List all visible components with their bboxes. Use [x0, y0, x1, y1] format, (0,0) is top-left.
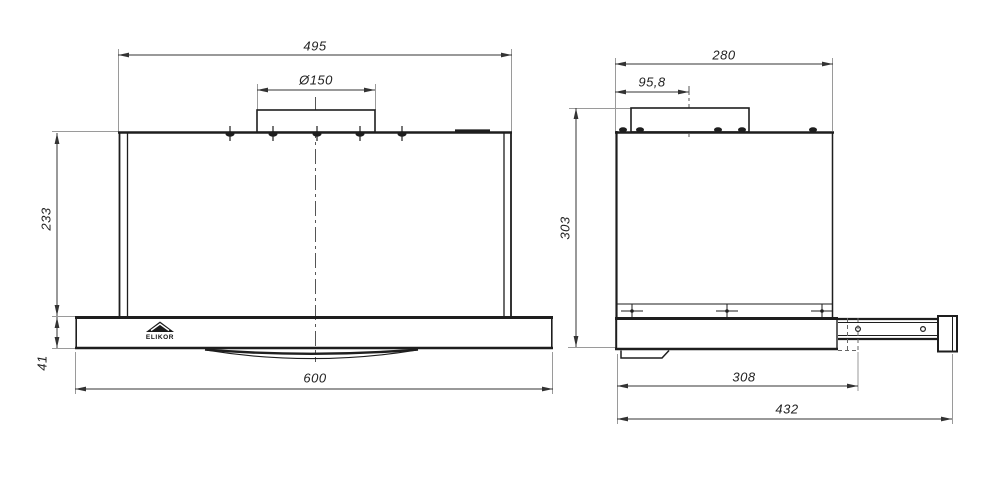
dim-label-body-depth: 308 — [732, 371, 755, 384]
side-duct-stub — [631, 108, 749, 132]
dim-label-panel-height: 41 — [36, 355, 49, 370]
dim-label-body-height: 233 — [40, 207, 53, 230]
dim-label-front-top-width: 495 — [303, 40, 326, 53]
dim-label-total-width: 600 — [303, 372, 326, 385]
dim-label-duct-offset: 95,8 — [638, 76, 665, 89]
slider-end-cap — [938, 316, 957, 352]
side-view — [568, 58, 957, 424]
dim-label-total-height: 303 — [559, 216, 572, 239]
side-extension-lines — [568, 58, 953, 424]
front-view — [52, 49, 553, 394]
dim-label-duct-diameter: Ø150 — [299, 74, 333, 87]
side-bottom-panel — [615, 318, 838, 350]
drawing-linework — [0, 0, 1000, 492]
dim-label-side-top-depth: 280 — [712, 49, 735, 62]
dim-label-total-depth: 432 — [775, 403, 798, 416]
technical-drawing-canvas: 495 Ø150 233 41 600 280 95,8 303 308 432… — [0, 0, 1000, 492]
front-dimension-arrows — [55, 53, 553, 392]
slider-rail — [838, 319, 938, 339]
front-duct-flange — [257, 110, 375, 132]
side-foot — [621, 351, 669, 359]
side-body — [615, 127, 834, 318]
side-screw-marks — [621, 305, 833, 318]
front-visor-arc — [205, 350, 418, 359]
brand-logo-icon — [146, 322, 174, 333]
brand-logo-text: ELIKOR — [146, 334, 174, 341]
front-dimension-lines — [57, 55, 553, 389]
